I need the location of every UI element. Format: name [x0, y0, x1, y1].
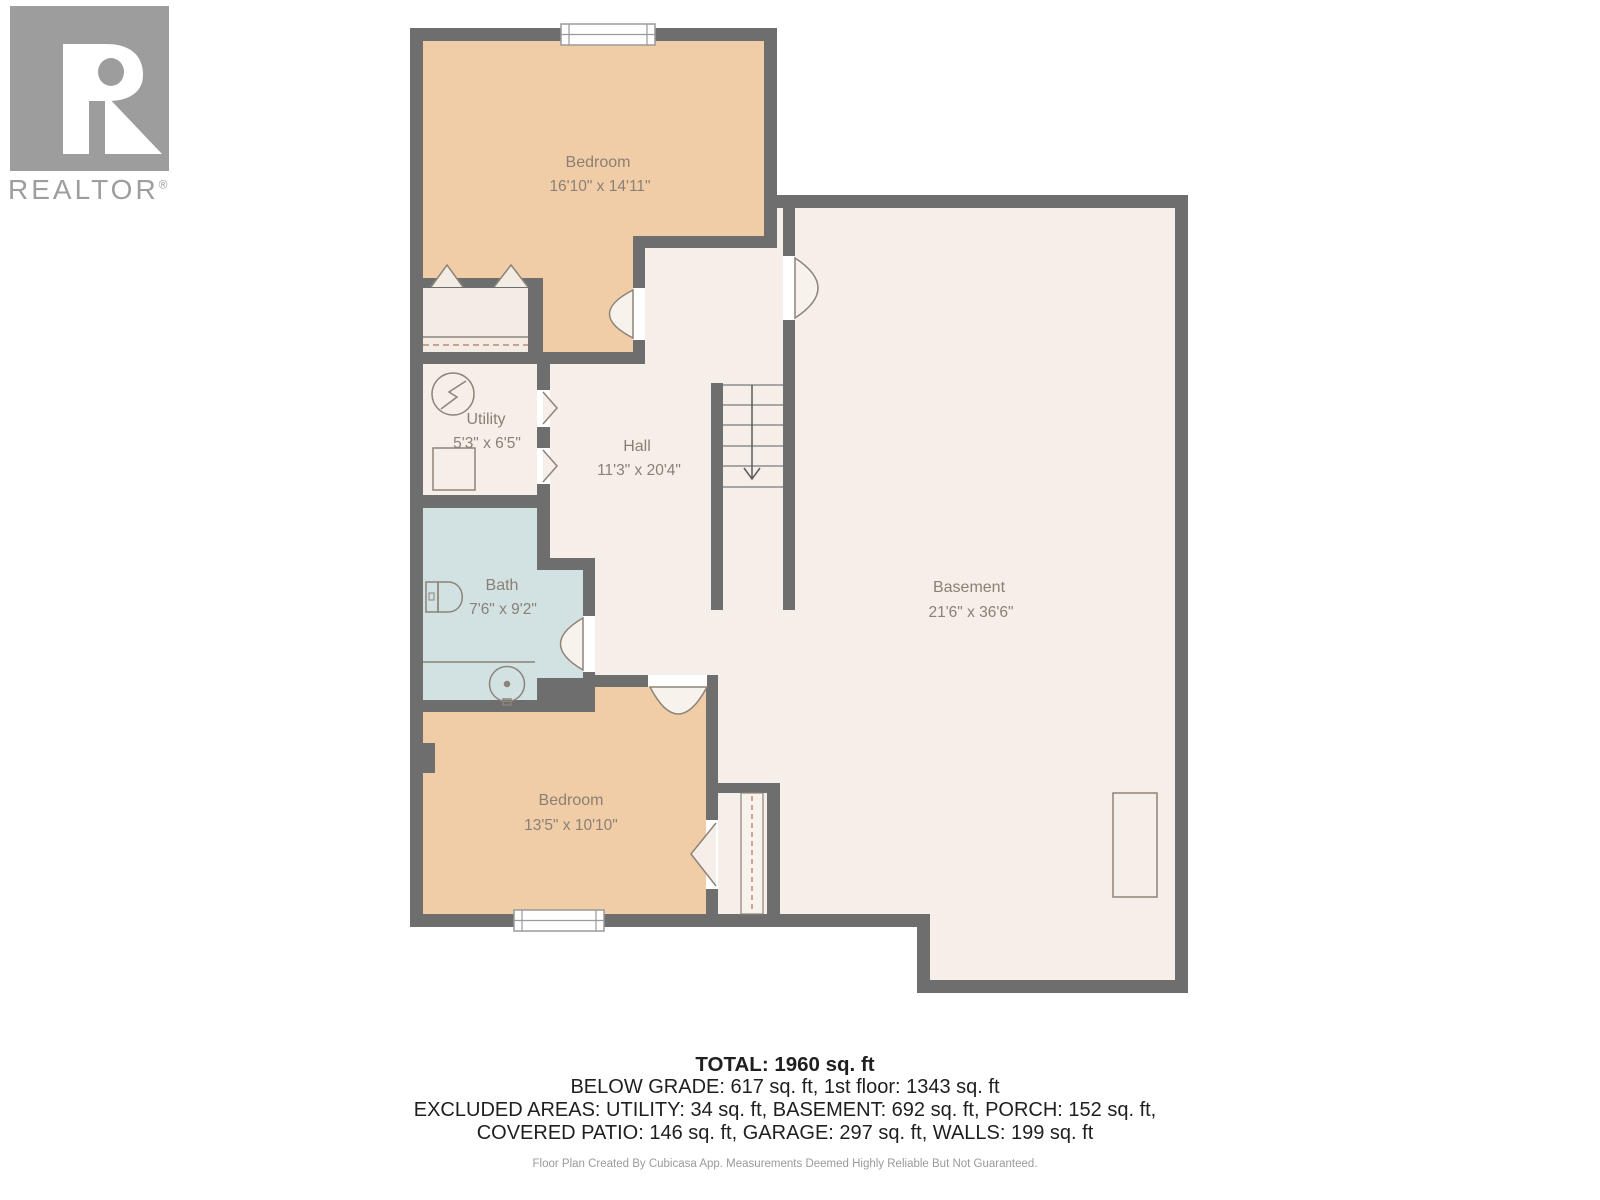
gap-bath-door: [583, 616, 595, 672]
wall-bath-step: [537, 558, 595, 570]
bath-dims: 7'6" x 9'2": [469, 601, 537, 618]
bedroom2-label: Bedroom: [539, 792, 604, 809]
floor-plan-drawing: Bedroom 16'10" x 14'11" Utility 5'3" x 6…: [0, 0, 1600, 1200]
wall-exterior-left: [410, 28, 423, 927]
gap-basement-door: [783, 256, 795, 320]
wall-bedroom1-hall-h: [633, 236, 777, 248]
wall-protrusion: [410, 743, 435, 773]
wall-stair-left: [711, 383, 723, 610]
wall-basement-bottom: [917, 980, 1188, 993]
hall-label: Hall: [623, 438, 651, 455]
wall-bath-door-upper: [583, 570, 595, 618]
excluded-areas-text: EXCLUDED AREAS: UTILITY: 34 sq. ft, BASE…: [0, 1099, 1570, 1122]
below-grade-text: BELOW GRADE: 617 sq. ft, 1st floor: 1343…: [0, 1076, 1570, 1099]
utility-dims: 5'3" x 6'5": [453, 435, 521, 452]
wall-utility-bottom: [410, 495, 550, 508]
total-area-text: TOTAL: 1960 sq. ft: [0, 1053, 1570, 1076]
bedroom2-dims: 13'5" x 10'10": [524, 817, 618, 834]
gap-bedroom1-door: [633, 288, 645, 340]
wall-closet2-right: [767, 783, 780, 917]
wall-basement-step: [917, 917, 930, 993]
floor-basement-step: [917, 927, 1175, 981]
bedroom1-label: Bedroom: [566, 154, 631, 171]
wall-closet1-right: [528, 278, 543, 364]
bath-label: Bath: [486, 577, 519, 594]
wall-basement-top: [777, 195, 1188, 208]
wall-closet2-top: [706, 783, 770, 793]
wall-bedroom1-right: [764, 28, 777, 248]
wall-basement-right: [1175, 195, 1188, 993]
wall-exterior-bottom: [410, 914, 930, 927]
floor-bedroom1: [423, 40, 764, 248]
closet2-sliding-door: [741, 793, 763, 914]
floor-closet1: [423, 288, 528, 352]
utility-label: Utility: [466, 411, 505, 428]
wall-utility-right: [537, 364, 550, 508]
excluded-areas-text-2: COVERED PATIO: 146 sq. ft, GARAGE: 297 s…: [0, 1122, 1570, 1145]
sink-drain-icon: [505, 682, 510, 687]
bedroom1-dims: 16'10" x 14'11": [549, 178, 650, 195]
floor-plan-page: REALTOR®: [0, 0, 1600, 1200]
disclaimer-text: Floor Plan Created By Cubicasa App. Meas…: [0, 1158, 1570, 1170]
basement-dims: 21'6" x 36'6": [928, 604, 1013, 621]
area-summary: TOTAL: 1960 sq. ft BELOW GRADE: 617 sq. …: [0, 1053, 1570, 1145]
wall-bedroom1-bottom: [410, 352, 645, 364]
floor-bedroom2: [423, 712, 706, 914]
wall-bath-bottom: [410, 700, 550, 712]
gap-bedroom2-door: [648, 675, 707, 687]
furnace-icon: [1113, 793, 1157, 897]
basement-label: Basement: [933, 579, 1006, 596]
hall-dims: 11'3" x 20'4": [597, 462, 681, 479]
